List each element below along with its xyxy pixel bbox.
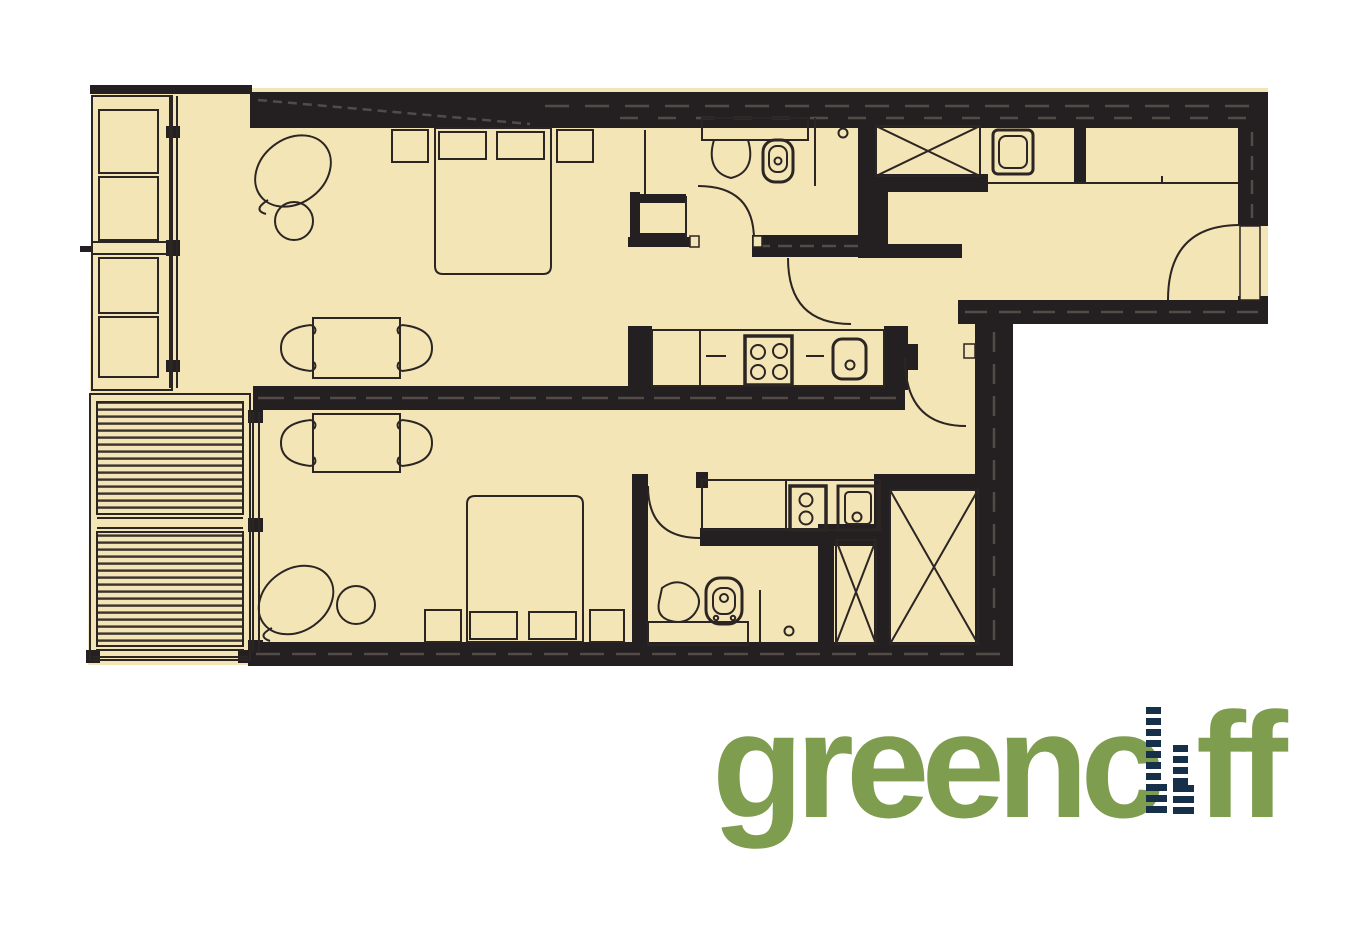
logo-bar-l: [1146, 707, 1161, 784]
lower-deck: [90, 394, 259, 660]
apartment-floor: [88, 88, 1268, 665]
logo-bar-i-base: [1173, 785, 1194, 815]
timber-deck-boards: [97, 532, 243, 646]
entry-door-leaf: [1240, 226, 1260, 300]
timber-deck-boards: [97, 402, 243, 514]
page: { "page": { "background": "#ffffff" }, "…: [0, 0, 1370, 926]
logo-text-greenc: greenc: [712, 690, 1156, 840]
logo-text-ff: ff: [1196, 690, 1280, 840]
logo-bar-l-base: [1146, 784, 1167, 814]
logo-bar-i: [1173, 745, 1188, 785]
